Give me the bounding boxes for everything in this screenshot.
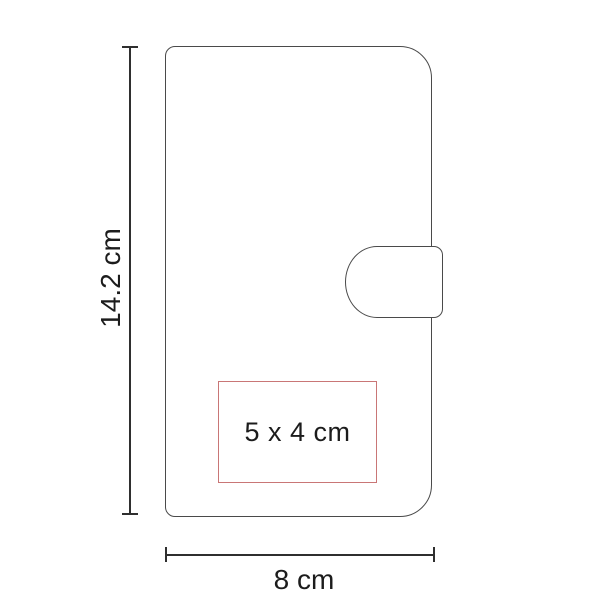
width-dimension-right-tick [433, 547, 435, 562]
width-dimension-label: 8 cm [224, 564, 384, 596]
height-dimension-bottom-tick [122, 513, 138, 515]
height-dimension-label: 14.2 cm [95, 213, 127, 343]
diagram-canvas: 5 x 4 cm 14.2 cm 8 cm [0, 0, 600, 600]
width-dimension-line [166, 554, 434, 556]
clasp-tab [345, 246, 443, 318]
height-dimension-line [129, 47, 131, 514]
height-dimension-top-tick [122, 46, 138, 48]
imprint-area: 5 x 4 cm [218, 381, 377, 483]
width-dimension-left-tick [165, 547, 167, 562]
imprint-area-label: 5 x 4 cm [244, 417, 350, 448]
